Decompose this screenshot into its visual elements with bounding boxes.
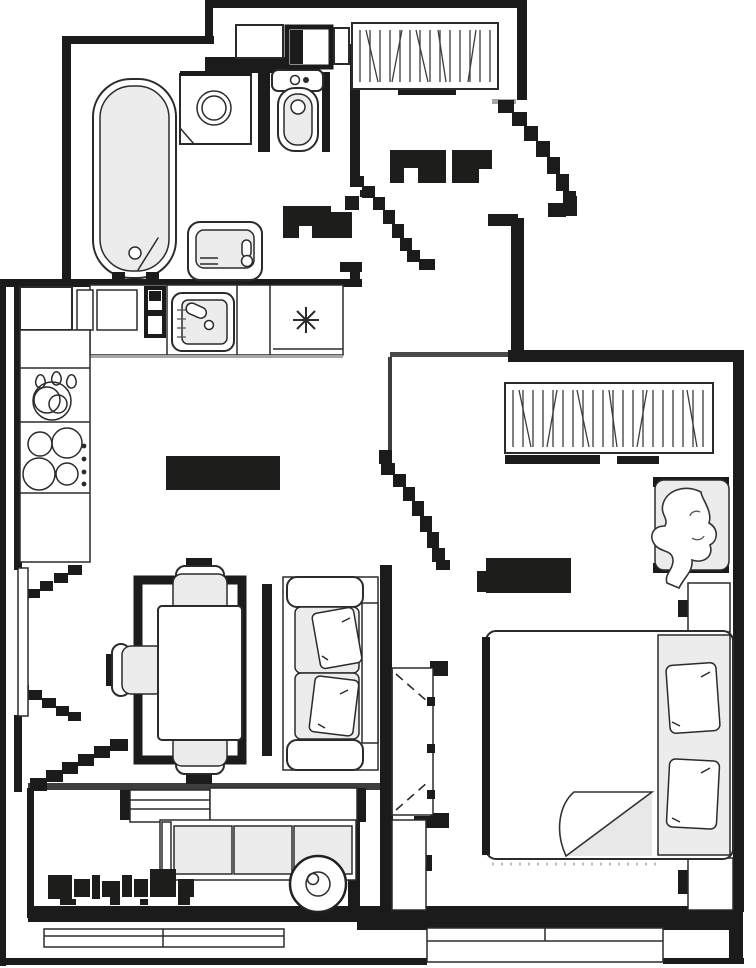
hallway-label-redacted [360,150,492,197]
floor-plan-canvas [0,0,756,968]
nightstand-bottom [688,858,733,910]
sofa-pillow [311,607,362,669]
dining-table [158,606,242,740]
toilet [272,70,323,151]
balcony-railing [44,929,284,947]
armchair [652,477,729,588]
bedroom-label-redacted [477,558,571,593]
tv-panel [262,584,272,756]
double-bed [482,631,733,864]
kitchen-window [18,568,28,716]
bathroom-door-swing-arc [340,176,435,272]
kitchen-living-label-redacted [166,456,280,490]
sofa-pillow [309,676,359,737]
bathtub [93,79,176,279]
washbasin [188,222,262,280]
bathroom-label-redacted [283,196,359,238]
balcony-label-redacted [48,869,194,905]
entrance-door-swing-arc [498,100,576,217]
folding-closet [392,661,449,828]
washing-machine [180,71,251,144]
entry-wardrobe [352,23,498,89]
bed-pillow [666,662,721,733]
bedroom-wardrobe [505,383,713,453]
bed-pillow [666,759,719,830]
bedroom-window-band [427,928,663,962]
floor-plan-drawing [0,0,756,968]
bedroom-door-swing-arc [381,463,450,570]
bedroom-closet-bottom [392,820,426,910]
kitchen-left-column [20,330,90,562]
nightstand-top [688,583,730,632]
sofa [283,577,378,770]
kitchen-sink [172,293,234,351]
balcony-round-table [290,856,346,912]
dining-chair-left [106,644,164,696]
balcony-door-and-window-block [130,788,357,823]
